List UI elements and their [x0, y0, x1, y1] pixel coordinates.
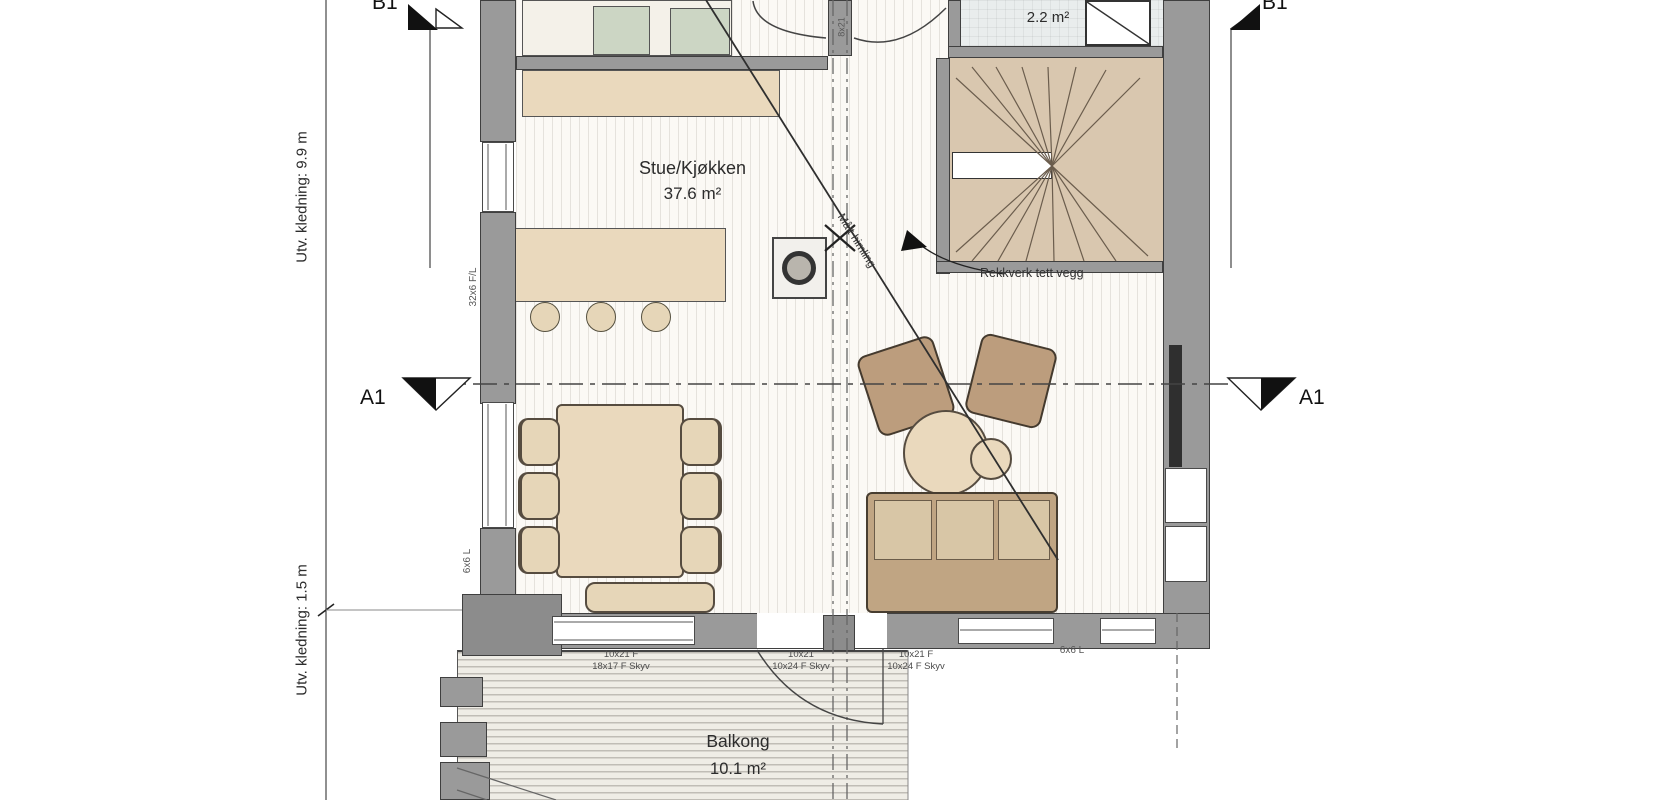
bar-stool — [530, 302, 560, 332]
room-name-living-kitchen: Stue/Kjøkken — [590, 157, 795, 180]
window-size-left-lower: 6x6 L — [462, 549, 475, 573]
facade-dimension-upper: Utv. kledning: 9.9 m — [294, 131, 313, 262]
stove-burner — [782, 251, 816, 285]
dining-chair — [518, 418, 560, 466]
room-area-living-kitchen: 37.6 m² — [590, 183, 795, 204]
kitchen-appliance-1 — [593, 6, 650, 55]
balcony-post — [440, 722, 487, 757]
window-bottom-left — [552, 616, 695, 645]
dining-chair — [680, 526, 722, 574]
kitchen-appliance-2 — [670, 8, 730, 55]
balcony-post — [440, 677, 483, 707]
dining-chair — [518, 526, 560, 574]
window-right-glazing — [1169, 345, 1182, 467]
bottom-window-label-3-top: 10x21 F — [846, 649, 986, 661]
wall-stair-left — [936, 58, 950, 274]
window-bottom-right-1 — [958, 618, 1054, 644]
side-table — [970, 438, 1012, 480]
stair-handrail — [952, 152, 1052, 179]
sofa-cushion — [874, 500, 932, 560]
balcony-area: 10.1 m² — [662, 759, 814, 780]
balcony-name: Balkong — [662, 731, 814, 753]
section-label-a1-left: A1 — [360, 385, 386, 411]
balcony-post — [440, 762, 490, 800]
kitchen-island — [495, 228, 726, 302]
sofa-cushion — [998, 500, 1050, 560]
dining-bench — [585, 582, 715, 613]
dining-table — [556, 404, 684, 578]
dimension-tick — [318, 604, 334, 616]
window-right-box-2 — [1165, 526, 1207, 582]
bar-stool — [586, 302, 616, 332]
dining-chair — [680, 472, 722, 520]
section-marker-b1-right-triangle — [1230, 4, 1260, 30]
window-size-left-upper: 32x6 F/L — [468, 268, 481, 307]
bottom-window-label-3-bottom: 10x24 F Skyv — [846, 661, 986, 673]
window-left-upper — [482, 142, 514, 212]
dining-chair — [680, 418, 722, 466]
window-right-box-1 — [1165, 468, 1207, 523]
bottom-window-label-3: 10x21 F 10x24 F Skyv — [846, 649, 986, 673]
section-label-a1-right: A1 — [1299, 385, 1325, 411]
bottom-window-label-1: 10x21 F 18x17 F Skyv — [545, 649, 697, 673]
section-marker-a1-left-triangle — [403, 378, 470, 410]
window-bottom-right-2 — [1100, 618, 1156, 644]
section-label-b1-left: B1 — [372, 0, 398, 16]
deck-column — [823, 615, 855, 651]
wc-door-size: 8x21 — [836, 17, 847, 37]
railing-note: Rekkverk tett vegg — [980, 266, 1170, 282]
wall-left-middle — [480, 212, 516, 404]
wall-wc-bottom — [948, 46, 1163, 58]
corner-block-sw — [462, 594, 562, 656]
wall-kitchen-half — [516, 56, 828, 70]
kitchen-counter — [522, 70, 780, 117]
section-marker-a1-right-triangle — [1228, 378, 1295, 410]
window-left-lower — [482, 402, 514, 528]
bar-stool — [641, 302, 671, 332]
room-area-wc: 2.2 m² — [998, 9, 1098, 28]
balcony-door-opening — [757, 613, 887, 648]
floor-plan: Stue/Kjøkken 37.6 m² 2.2 m² Rekkverk tet… — [0, 0, 1670, 800]
section-marker-b1-left-triangle — [408, 4, 462, 30]
dining-chair — [518, 472, 560, 520]
bottom-window-label-1-top: 10x21 F — [545, 649, 697, 661]
window-size-bottom-right: 6x6 L — [1042, 645, 1102, 658]
facade-dimension-lower: Utv. kledning: 1.5 m — [294, 564, 313, 695]
sofa-cushion — [936, 500, 994, 560]
bottom-window-label-1-bottom: 18x17 F Skyv — [545, 661, 697, 673]
section-label-b1-right: B1 — [1262, 0, 1288, 16]
wall-left-upper — [480, 0, 516, 142]
